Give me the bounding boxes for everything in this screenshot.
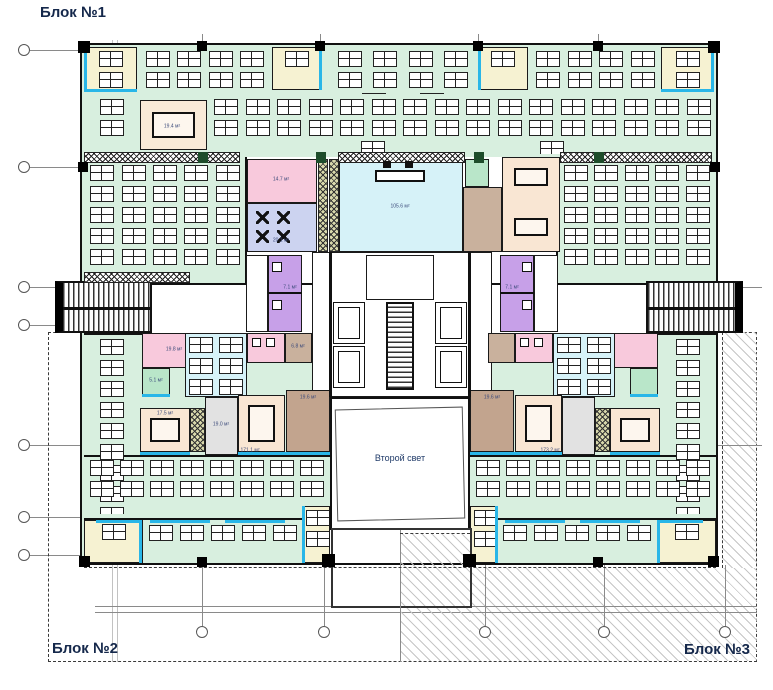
desk-zone [330, 48, 476, 94]
desk-cluster [372, 99, 396, 115]
wall [468, 252, 471, 397]
desk-cluster [656, 481, 680, 497]
wardrobe-strip [318, 159, 328, 252]
desk-zone [473, 457, 713, 517]
desk-cluster [587, 358, 611, 374]
column [594, 152, 604, 163]
desk-cluster [686, 186, 710, 202]
axis-circle [18, 161, 30, 173]
axis-circle [18, 549, 30, 561]
desk-cluster [536, 460, 560, 476]
desk-cluster [189, 379, 213, 395]
grid-line [718, 445, 762, 446]
desk-cluster [216, 249, 240, 265]
fixture [534, 338, 543, 347]
desk-cluster [146, 51, 170, 67]
desk-cluster [153, 186, 177, 202]
room-tan-upper [463, 187, 502, 252]
desk-cluster [625, 228, 649, 244]
desk-cluster [564, 207, 588, 223]
desk-cluster [592, 120, 616, 136]
fixture [252, 338, 261, 347]
block3-label: Блок №3 [684, 641, 750, 658]
desk-cluster [216, 228, 240, 244]
desk-zone [210, 96, 715, 154]
desk-cluster [240, 481, 264, 497]
desk-cluster [534, 525, 558, 541]
desk-cluster [676, 381, 700, 397]
desk-cluster [214, 120, 238, 136]
reception-chair [383, 161, 391, 168]
block2-label: Блок №2 [52, 640, 118, 657]
accent-wall [495, 506, 498, 563]
desk-cluster [90, 460, 114, 476]
desk-cluster [568, 51, 592, 67]
desk-cluster [566, 481, 590, 497]
desk-cluster [177, 72, 201, 88]
toilet-fixture [522, 262, 532, 272]
desk-cluster [435, 120, 459, 136]
desk-zone [86, 162, 244, 276]
accent-wall [96, 520, 139, 523]
desk-cluster [594, 207, 618, 223]
desk-cluster [300, 460, 324, 476]
area-label: 5.1 м² [149, 379, 162, 384]
desk-cluster [219, 337, 243, 353]
grid-line [30, 517, 84, 518]
column [198, 152, 208, 163]
grid-line [30, 555, 84, 556]
desk-cluster [564, 228, 588, 244]
desk-cluster [120, 460, 144, 476]
desk-cluster [676, 339, 700, 355]
desk-cluster [100, 360, 124, 376]
cafe-table [277, 211, 290, 224]
desk-cluster [99, 72, 123, 88]
desk-cluster [338, 72, 362, 88]
axis-circle [18, 319, 30, 331]
axis-circle [318, 626, 330, 638]
toilet-fixture [272, 300, 282, 310]
desk-cluster [506, 481, 530, 497]
stair-right [646, 281, 743, 333]
desk-cluster [675, 524, 699, 540]
desk-cluster [150, 481, 174, 497]
desk-cluster [246, 99, 270, 115]
accent-wall [660, 520, 703, 523]
desk-cluster [676, 51, 700, 67]
column [78, 162, 88, 172]
meeting-table [150, 418, 180, 442]
desk-cluster [568, 72, 592, 88]
desk-cluster [625, 165, 649, 181]
desk-cluster [184, 228, 208, 244]
desk-cluster [403, 120, 427, 136]
column [593, 557, 603, 567]
wall [329, 252, 332, 397]
desk-cluster [90, 165, 114, 181]
column [322, 554, 335, 567]
accent-wall [661, 89, 714, 92]
meeting-table [525, 405, 552, 442]
desk-cluster [373, 51, 397, 67]
accent-wall [319, 47, 322, 90]
desk-cluster [277, 120, 301, 136]
desk-cluster [466, 99, 490, 115]
desk-cluster [686, 228, 710, 244]
grid-line [30, 167, 84, 168]
desk-zone [532, 48, 659, 94]
room-cyan-lower-right [553, 333, 615, 397]
desk-cluster [498, 99, 522, 115]
service-room [534, 255, 558, 332]
desk-cluster [122, 207, 146, 223]
desk-cluster [99, 51, 123, 67]
desk-cluster [596, 460, 620, 476]
area-label: 6.8 м² [291, 345, 304, 350]
reception-desk [375, 170, 425, 182]
desk-cluster [90, 481, 114, 497]
axis-circle [196, 626, 208, 638]
desk-cluster [498, 120, 522, 136]
meeting-table [514, 218, 548, 236]
desk-cluster [655, 207, 679, 223]
axis-circle [719, 626, 731, 638]
desk-zone [87, 457, 327, 517]
column [463, 554, 476, 567]
column [78, 41, 90, 53]
desk-cluster [626, 460, 650, 476]
elevator [435, 346, 467, 388]
desk-cluster [150, 460, 174, 476]
grid-line [725, 565, 726, 626]
desk-cluster [631, 72, 655, 88]
desk-cluster [655, 165, 679, 181]
grid-line [485, 565, 486, 626]
desk-cluster [564, 249, 588, 265]
desk-cluster [270, 481, 294, 497]
desk-cluster [216, 207, 240, 223]
column [316, 152, 326, 163]
accent-wall [711, 47, 714, 92]
desk-cluster [529, 120, 553, 136]
desk-cluster [149, 525, 173, 541]
area-label: 173.2 м² [540, 449, 559, 454]
desk-cluster [624, 120, 648, 136]
desk-cluster [476, 460, 500, 476]
desk-cluster [102, 524, 126, 540]
wall [268, 292, 302, 294]
desk-cluster [536, 51, 560, 67]
desk-cluster [676, 423, 700, 439]
accent-wall [630, 394, 658, 397]
desk-cluster [100, 381, 124, 397]
block-boundary [48, 332, 49, 662]
area-label: 19.8 м² [166, 348, 182, 353]
accent-wall [150, 520, 210, 523]
area-label: 19.6 м² [300, 396, 316, 401]
desk-cluster [594, 186, 618, 202]
desk-cluster [536, 481, 560, 497]
column [197, 41, 207, 51]
desk-cluster [180, 481, 204, 497]
desk-cluster [180, 525, 204, 541]
desk-cluster [566, 460, 590, 476]
desk-cluster [565, 525, 589, 541]
floor-plan: Блок №1 Блок №2 Блок №3 Второй свет 19.4… [0, 0, 773, 690]
area-label: 14.7 м² [273, 178, 289, 183]
hatch-area-right-strip [722, 332, 757, 568]
desk-cluster [153, 228, 177, 244]
elevator [333, 302, 365, 344]
desk-cluster [273, 525, 297, 541]
axis-circle [18, 439, 30, 451]
area-label: 17.5 м² [157, 412, 173, 417]
wardrobe-strip [595, 408, 610, 452]
grid-line [30, 445, 84, 446]
desk-cluster [100, 120, 124, 136]
locker-strip [338, 152, 465, 163]
desk-cluster [210, 481, 234, 497]
desk-cluster [656, 460, 680, 476]
block-boundary [48, 661, 757, 662]
office-corner-top-right [661, 47, 714, 92]
desk-cluster [435, 99, 459, 115]
column [79, 556, 90, 567]
desk-cluster [557, 358, 581, 374]
desk-cluster [599, 72, 623, 88]
desk-cluster [444, 51, 468, 67]
desk-cluster [340, 99, 364, 115]
desk-cluster [655, 120, 679, 136]
desk-cluster [420, 93, 444, 94]
reception-chair [405, 161, 413, 168]
elevator [333, 346, 365, 388]
desk-cluster [216, 186, 240, 202]
desk-cluster [561, 120, 585, 136]
axis-circle [18, 511, 30, 523]
desk-cluster [90, 249, 114, 265]
room-tan-core-right [488, 333, 515, 363]
column [315, 41, 325, 51]
desk-cluster [246, 120, 270, 136]
axis-circle [18, 44, 30, 56]
accent-wall [139, 520, 142, 563]
desk-cluster [210, 460, 234, 476]
desk-cluster [120, 481, 144, 497]
accent-wall [505, 520, 565, 523]
desk-cluster [90, 207, 114, 223]
desk-cluster [655, 249, 679, 265]
room-green-lower-right [630, 368, 658, 397]
grid-line [604, 565, 605, 626]
room-green-upper [465, 159, 489, 187]
desk-cluster [338, 51, 362, 67]
desk-cluster [557, 379, 581, 395]
area-label: 105.6 м² [390, 205, 409, 210]
desk-cluster [655, 228, 679, 244]
desk-cluster [596, 525, 620, 541]
fixture [266, 338, 275, 347]
desk-cluster [184, 165, 208, 181]
block-boundary [84, 567, 716, 568]
desk-cluster [594, 165, 618, 181]
desk-cluster [100, 423, 124, 439]
desk-cluster [599, 51, 623, 67]
area-label: 19.0 м² [213, 423, 229, 428]
desk-cluster [90, 186, 114, 202]
desk-cluster [409, 72, 433, 88]
locker-strip [84, 152, 240, 163]
area-label: 20.1 м² [273, 239, 289, 244]
desk-cluster [240, 51, 264, 67]
desk-cluster [184, 249, 208, 265]
grid-line [324, 565, 325, 626]
desk-cluster [564, 186, 588, 202]
desk-cluster [306, 510, 330, 526]
office-corner-bottom-left [84, 520, 143, 563]
desk-cluster [594, 249, 618, 265]
accent-wall [478, 47, 481, 90]
column [474, 152, 484, 163]
desk-cluster [592, 99, 616, 115]
desk-cluster [189, 337, 213, 353]
void-label: Второй свет [375, 453, 425, 463]
desk-cluster [627, 525, 651, 541]
desk-cluster [209, 51, 233, 67]
column [197, 557, 207, 567]
desk-cluster [153, 207, 177, 223]
office-flank-left [272, 47, 322, 90]
desk-cluster [655, 186, 679, 202]
atrium-outline [331, 528, 472, 608]
desk-cluster [373, 72, 397, 88]
wardrobe-strip [329, 159, 339, 252]
desk-cluster [686, 460, 710, 476]
area-label: 7.1 м² [283, 286, 296, 291]
accent-wall [84, 89, 137, 92]
block-boundary [722, 332, 723, 568]
desk-cluster [466, 120, 490, 136]
accent-wall [142, 394, 170, 397]
desk-cluster [362, 93, 386, 94]
desk-cluster [90, 228, 114, 244]
desk-zone [560, 162, 713, 276]
desk-cluster [285, 51, 309, 67]
accent-wall [84, 47, 87, 92]
column [708, 556, 719, 567]
desk-cluster [491, 51, 515, 67]
desk-cluster [587, 379, 611, 395]
column [473, 41, 483, 51]
desk-cluster [122, 249, 146, 265]
accent-wall [302, 506, 305, 563]
area-label: 171.1 м² [240, 449, 259, 454]
column [710, 162, 720, 172]
stair-left [55, 281, 152, 333]
desk-zone [145, 522, 301, 561]
locker-strip [560, 152, 712, 163]
desk-cluster [153, 165, 177, 181]
desk-zone [86, 96, 138, 154]
meeting-table [248, 405, 275, 442]
desk-cluster [300, 481, 324, 497]
toilet-fixture [522, 300, 532, 310]
axis-circle [18, 281, 30, 293]
desk-cluster [122, 186, 146, 202]
desk-cluster [153, 249, 177, 265]
desk-cluster [676, 72, 700, 88]
desk-cluster [270, 460, 294, 476]
desk-cluster [214, 99, 238, 115]
desk-cluster [506, 460, 530, 476]
desk-cluster [564, 165, 588, 181]
fixture [520, 338, 529, 347]
accent-wall [657, 520, 660, 563]
desk-cluster [476, 481, 500, 497]
desk-cluster [444, 72, 468, 88]
service-room [246, 255, 268, 332]
column [708, 41, 720, 53]
accent-wall [225, 520, 285, 523]
desk-cluster [655, 99, 679, 115]
desk-cluster [686, 481, 710, 497]
desk-cluster [624, 99, 648, 115]
accent-wall [610, 452, 660, 455]
desk-cluster [100, 402, 124, 418]
cafe-table [256, 211, 269, 224]
desk-cluster [306, 531, 330, 547]
desk-cluster [561, 99, 585, 115]
block-boundary [400, 533, 470, 534]
grid-line [400, 530, 401, 662]
desk-cluster [409, 51, 433, 67]
elevator [435, 302, 467, 344]
desk-cluster [529, 99, 553, 115]
core-lobby [366, 255, 434, 300]
desk-cluster [676, 360, 700, 376]
desk-cluster [180, 460, 204, 476]
toilet-fixture [272, 262, 282, 272]
desk-cluster [309, 120, 333, 136]
desk-cluster [240, 72, 264, 88]
desk-cluster [631, 51, 655, 67]
desk-cluster [625, 249, 649, 265]
grid-line [30, 50, 84, 51]
desk-cluster [100, 99, 124, 115]
desk-zone [499, 522, 655, 561]
desk-cluster [587, 337, 611, 353]
block1-label: Блок №1 [40, 4, 106, 21]
desk-zone [142, 48, 268, 94]
desk-cluster [209, 72, 233, 88]
corridor-lower-right [562, 397, 595, 455]
locker-strip [84, 272, 190, 283]
column [593, 41, 603, 51]
desk-cluster [687, 99, 711, 115]
desk-cluster [686, 207, 710, 223]
desk-cluster [219, 358, 243, 374]
office-flank-right [478, 47, 528, 90]
desk-cluster [177, 51, 201, 67]
desk-cluster [219, 379, 243, 395]
desk-cluster [100, 339, 124, 355]
desk-cluster [676, 402, 700, 418]
desk-cluster [122, 228, 146, 244]
cafe-table [256, 230, 269, 243]
accent-wall [140, 452, 190, 455]
desk-cluster [687, 120, 711, 136]
